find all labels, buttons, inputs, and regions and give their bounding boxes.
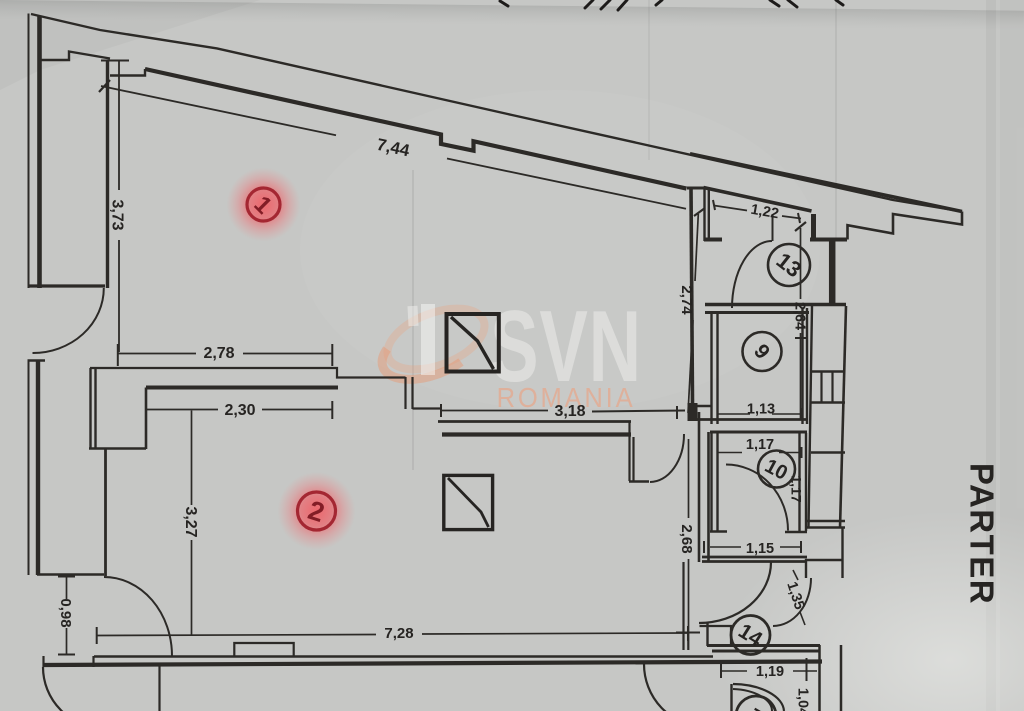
svg-text:7,28: 7,28 [384,625,413,642]
svg-text:2,68: 2,68 [678,524,695,553]
svg-text:2,64: 2,64 [792,302,808,330]
svg-text:PARTER: PARTER [964,463,1001,605]
svg-text:1,19: 1,19 [756,664,784,680]
svg-text:2,74: 2,74 [678,285,695,315]
svg-text:2,78: 2,78 [203,345,234,362]
svg-text:1,04: 1,04 [795,688,811,711]
svg-text:3,18: 3,18 [554,403,585,420]
svg-text:3,27: 3,27 [182,506,199,537]
svg-text:1,15: 1,15 [746,541,774,557]
svg-text:0,98: 0,98 [57,598,74,627]
svg-text:3,73: 3,73 [109,199,126,230]
svg-text:1,13: 1,13 [747,402,775,418]
svg-text:2,30: 2,30 [224,402,255,419]
